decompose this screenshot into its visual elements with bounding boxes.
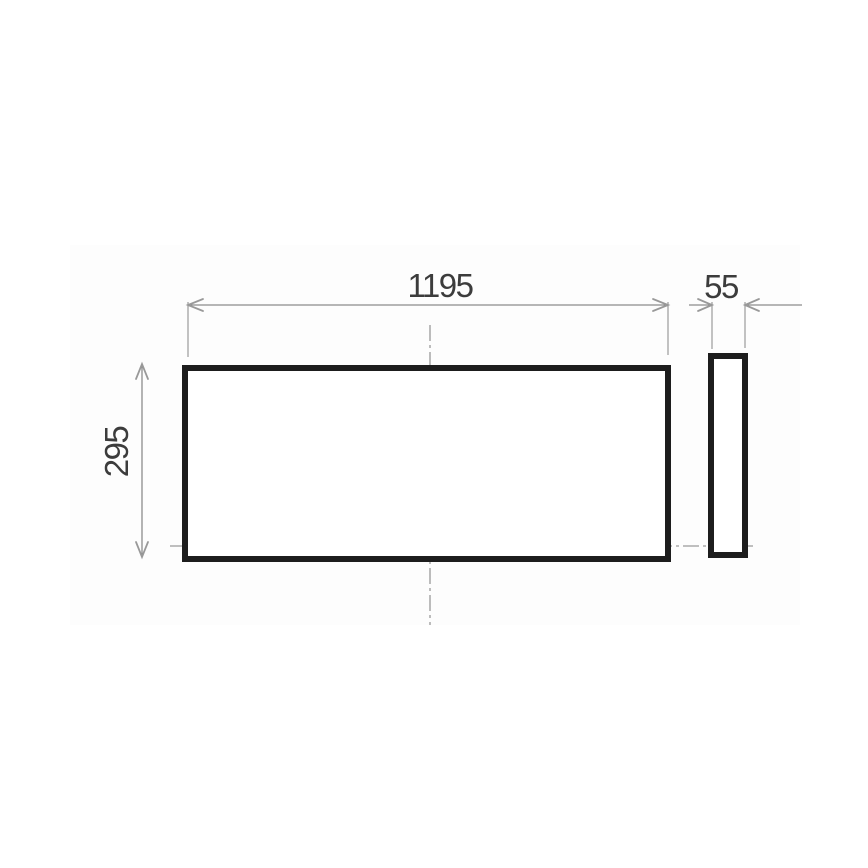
- dimension-drawing: 1195 295 55: [0, 0, 868, 868]
- height-dimension-label: 295: [98, 427, 135, 478]
- side-view-outline: [711, 356, 745, 555]
- depth-dimension-label: 55: [704, 268, 738, 305]
- width-dimension-label: 1195: [408, 267, 473, 304]
- technical-drawing-canvas: 1195 295 55: [0, 0, 868, 868]
- front-view-outline: [185, 368, 668, 559]
